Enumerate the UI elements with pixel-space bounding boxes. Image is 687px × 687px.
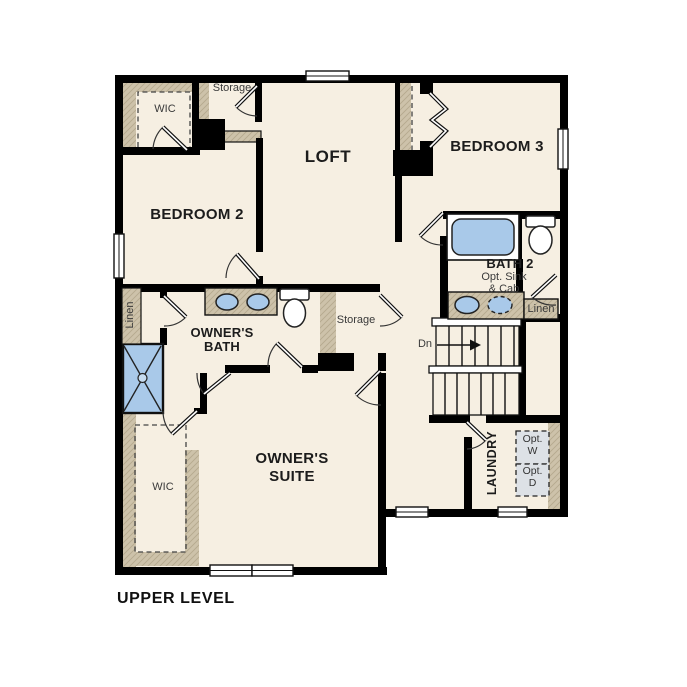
wic-owner-label: WIC bbox=[138, 481, 188, 493]
loft-window bbox=[306, 71, 349, 81]
owners-bath-label: OWNER'S BATH bbox=[182, 326, 262, 355]
floor-plan: WIC Storage LOFT BEDROOM 2 BEDROOM 3 BAT… bbox=[0, 0, 687, 687]
bath2-option-note: Opt. Sink & Cab bbox=[470, 271, 538, 295]
hall-window bbox=[396, 507, 428, 517]
optional-sink bbox=[488, 297, 512, 314]
bath2-label: BATH 2 bbox=[480, 257, 540, 271]
bath2-tub bbox=[447, 214, 519, 260]
bedroom3-window bbox=[558, 129, 568, 169]
owners-suite-window bbox=[210, 565, 293, 576]
bedroom2-label: BEDROOM 2 bbox=[137, 207, 257, 224]
optional-dryer-label: Opt. D bbox=[516, 466, 549, 489]
linen-west-label: Linen bbox=[124, 288, 138, 342]
bedroom2-window bbox=[114, 234, 124, 278]
staircase bbox=[429, 318, 522, 415]
floor-plan-drawing bbox=[0, 0, 687, 687]
linen-east-label: Linen bbox=[524, 303, 558, 315]
bedroom3-label: BEDROOM 3 bbox=[437, 139, 557, 156]
owners-suite-label: OWNER'S SUITE bbox=[242, 450, 342, 486]
plan-title: UPPER LEVEL bbox=[117, 590, 235, 608]
stairs-down-label: Dn bbox=[412, 338, 438, 350]
bath2-vanity bbox=[448, 292, 524, 319]
optional-washer-label: Opt. W bbox=[516, 434, 549, 457]
laundry-window bbox=[498, 507, 527, 517]
laundry-label: LAUNDRY bbox=[486, 421, 502, 505]
wic-top-label: WIC bbox=[140, 103, 190, 115]
storage-top-label: Storage bbox=[206, 82, 258, 94]
owners-bath-shower bbox=[123, 344, 163, 413]
storage-hall-label: Storage bbox=[330, 314, 382, 326]
loft-label: LOFT bbox=[288, 148, 368, 167]
bath2-toilet bbox=[526, 216, 555, 254]
owners-bath-vanity bbox=[205, 288, 277, 315]
